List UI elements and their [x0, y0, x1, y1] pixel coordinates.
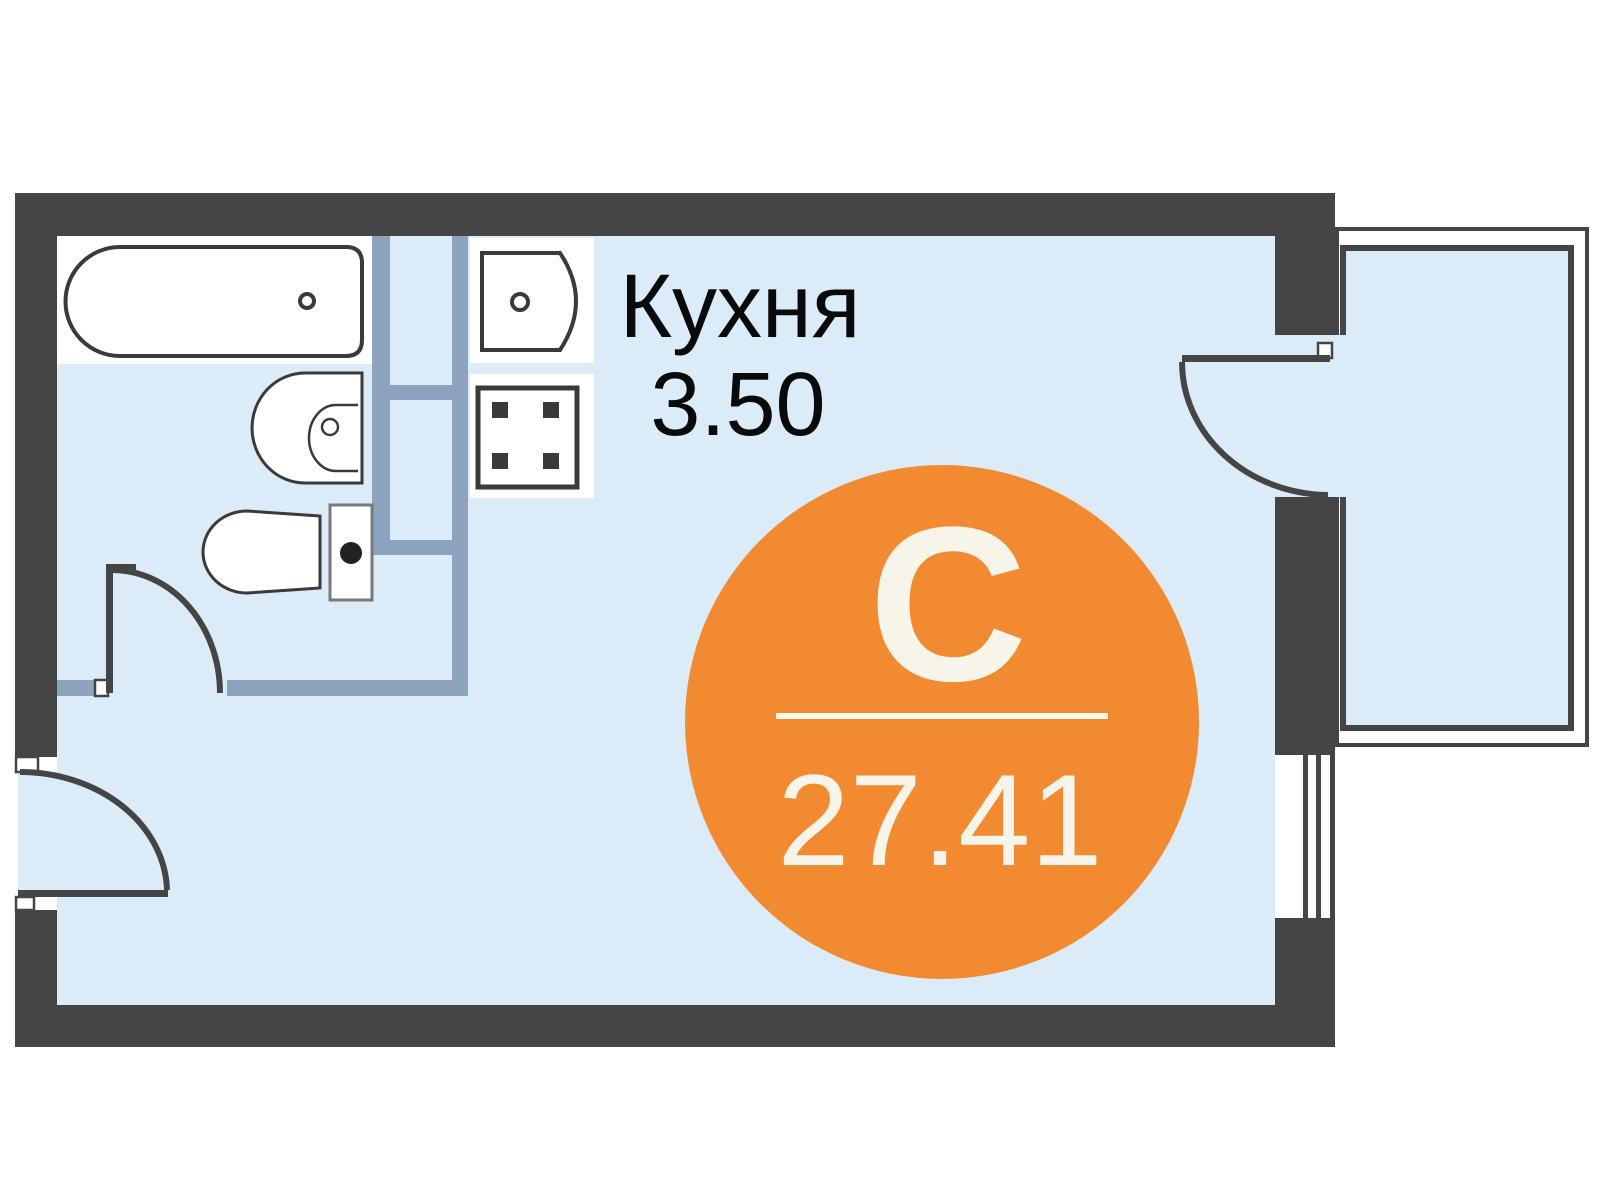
- shaft-wall-right: [452, 236, 468, 693]
- wall-top: [15, 193, 1335, 236]
- entrance-door-leaf: [18, 890, 168, 897]
- kitchen-labels: Кухня 3.50: [620, 257, 861, 455]
- unit-area-value: 27.41: [777, 747, 1102, 893]
- kitchen-label: Кухня: [620, 257, 861, 357]
- stove-burner: [543, 453, 559, 469]
- shaft-wall-left-upper: [372, 236, 390, 385]
- shaft-wall-left-lower: [372, 400, 390, 555]
- toilet-flush-button: [340, 542, 362, 564]
- kitchen-sink-icon: [470, 238, 594, 363]
- washbasin-faucet: [322, 419, 338, 435]
- bathtub-drain: [300, 294, 314, 308]
- entrance-opening: [18, 772, 57, 893]
- wall-bottom: [15, 1005, 1335, 1047]
- toilet-icon: [203, 505, 372, 600]
- balcony: [1337, 229, 1587, 745]
- kitchen-area-value: 3.50: [650, 355, 825, 455]
- stove-icon: [470, 374, 594, 498]
- stove-burner: [492, 453, 508, 469]
- entrance-door-jamb-bottom: [16, 897, 34, 910]
- bathroom-wall-right-segment: [227, 680, 468, 696]
- wall-right-middle: [1275, 497, 1335, 755]
- bathtub-outline: [65, 247, 362, 356]
- stove-burner: [543, 402, 559, 418]
- shaft-connector-lower: [372, 540, 452, 555]
- window-glass: [1275, 755, 1330, 918]
- window-pane-line: [1316, 755, 1321, 918]
- shaft-connector-upper: [372, 385, 452, 400]
- washbasin-icon: [252, 373, 362, 483]
- toilet-bowl: [203, 511, 320, 593]
- window-pane-line: [1303, 755, 1308, 918]
- unit-type-letter: С: [869, 481, 1028, 727]
- unit-badge: С 27.41: [685, 465, 1199, 979]
- unit-badge-divider: [776, 713, 1108, 719]
- wall-right-upper: [1275, 236, 1335, 343]
- wall-right-lower: [1275, 918, 1335, 1005]
- balcony-door-leaf: [1182, 355, 1330, 362]
- stove-burner: [492, 402, 508, 418]
- bathroom-wall-left-segment: [57, 680, 95, 696]
- washbasin-outline: [252, 373, 362, 483]
- window: [1275, 755, 1335, 918]
- bathroom-door-leaf: [106, 567, 113, 693]
- wall-left-upper: [15, 193, 57, 757]
- kitchen-sink-drain: [512, 294, 528, 310]
- bathtub-icon: [65, 247, 362, 356]
- floor-plan-drawing: Кухня 3.50 С 27.41: [0, 0, 1600, 1200]
- window-outer-edge: [1330, 755, 1335, 918]
- floor-plan: Кухня 3.50 С 27.41: [0, 0, 1600, 1200]
- balcony-inner-frame: [1343, 248, 1571, 728]
